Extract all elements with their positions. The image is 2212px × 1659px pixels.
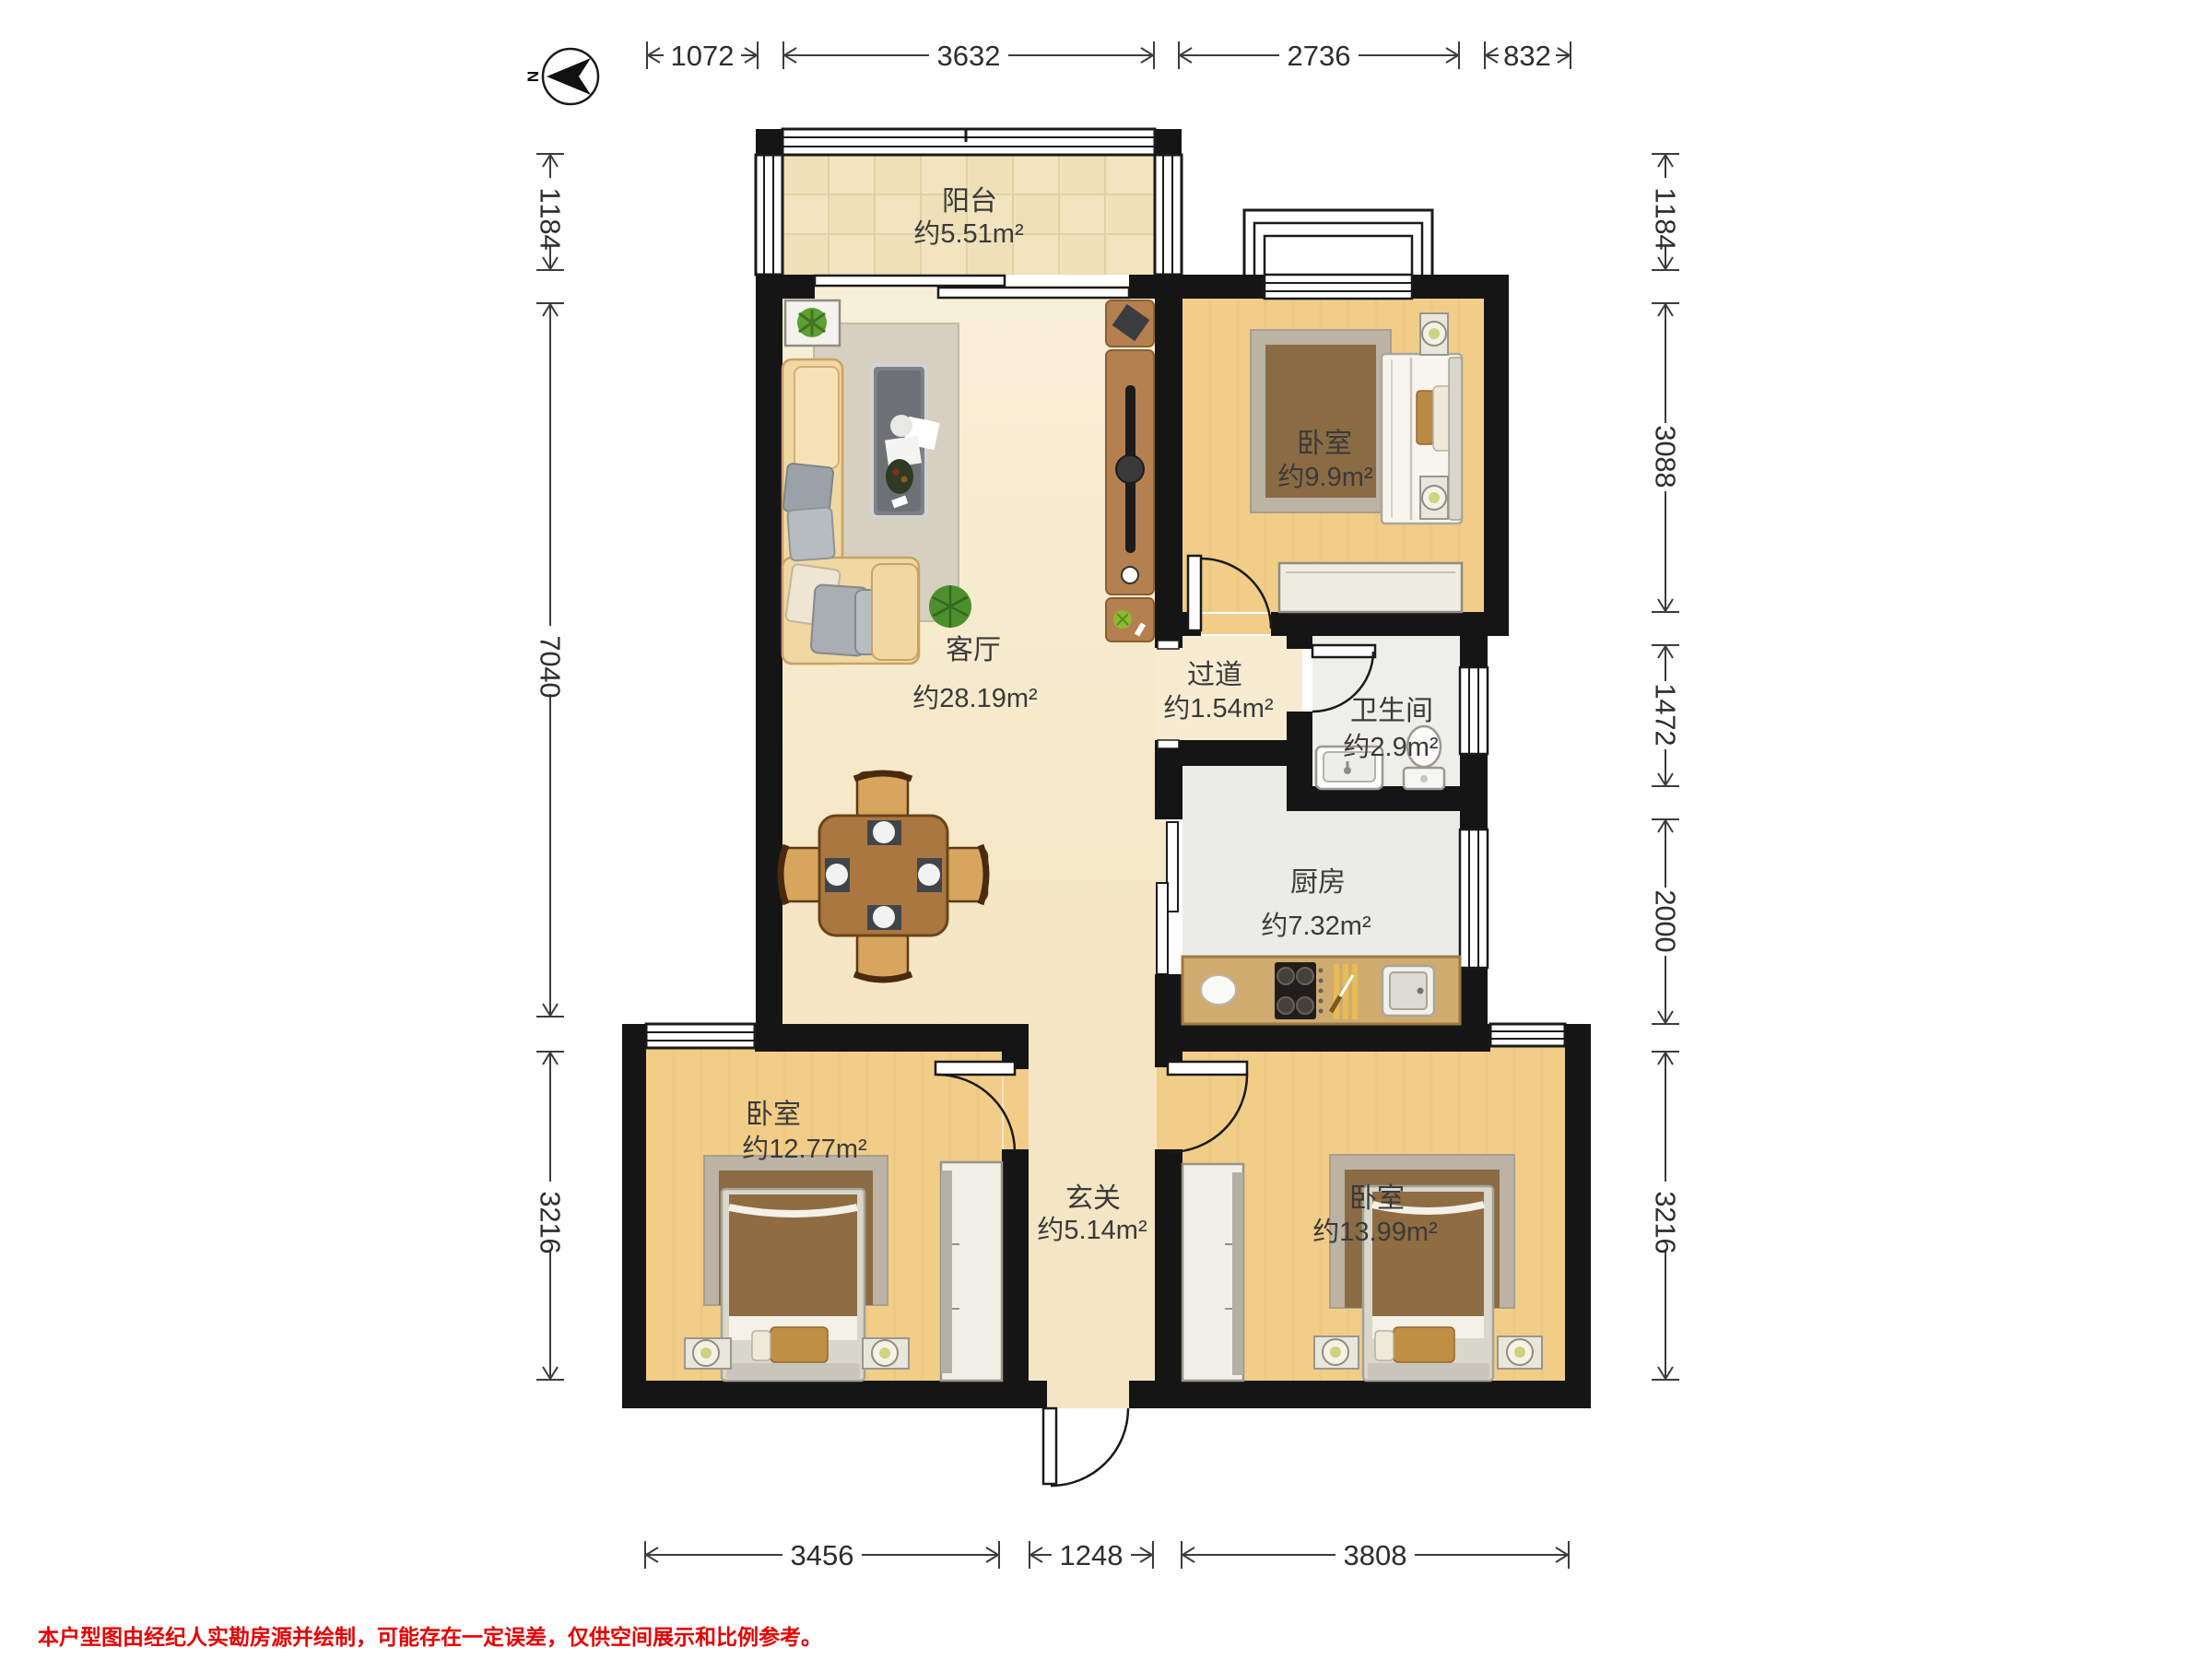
svg-text:本户型图由经纪人实勘房源并绘制，可能存在一定误差，仅供空间展: 本户型图由经纪人实勘房源并绘制，可能存在一定误差，仅供空间展示和比例参考。 — [38, 1625, 822, 1649]
svg-text:832: 832 — [1503, 40, 1551, 72]
svg-text:卧室: 卧室 — [1297, 429, 1352, 459]
svg-text:约7.32m²: 约7.32m² — [1261, 911, 1371, 941]
svg-text:阳台: 阳台 — [942, 186, 997, 217]
svg-text:卧室: 卧室 — [1349, 1183, 1405, 1214]
svg-text:4: 4 — [535, 234, 567, 250]
svg-text:卧室: 卧室 — [746, 1100, 801, 1130]
svg-text:4: 4 — [1650, 234, 1682, 250]
svg-text:约13.99m²: 约13.99m² — [1312, 1217, 1438, 1247]
svg-text:2: 2 — [535, 1206, 567, 1222]
svg-text:玄关: 玄关 — [1065, 1183, 1121, 1214]
svg-text:约1.54m²: 约1.54m² — [1163, 693, 1274, 724]
svg-text:2: 2 — [1650, 1206, 1682, 1222]
svg-text:0: 0 — [1650, 441, 1682, 456]
svg-text:客厅: 客厅 — [946, 635, 1001, 665]
svg-text:2: 2 — [1650, 730, 1682, 746]
svg-text:1: 1 — [1650, 187, 1682, 203]
svg-text:3456: 3456 — [791, 1539, 854, 1571]
svg-text:1: 1 — [1650, 1222, 1682, 1238]
svg-text:6: 6 — [1650, 1238, 1682, 1253]
svg-text:1: 1 — [1650, 203, 1682, 218]
svg-text:8: 8 — [1650, 472, 1682, 488]
svg-text:0: 0 — [1650, 936, 1682, 952]
svg-text:0: 0 — [1650, 905, 1682, 921]
svg-text:1: 1 — [1650, 683, 1682, 699]
svg-text:约12.77m²: 约12.77m² — [742, 1134, 867, 1164]
svg-text:约28.19m²: 约28.19m² — [912, 683, 1038, 713]
svg-text:约2.9m²: 约2.9m² — [1343, 732, 1438, 762]
svg-text:3808: 3808 — [1344, 1539, 1407, 1571]
svg-text:3632: 3632 — [937, 40, 1001, 72]
svg-text:4: 4 — [535, 666, 567, 682]
svg-text:3: 3 — [1650, 425, 1682, 441]
svg-text:3: 3 — [1650, 1191, 1682, 1206]
svg-text:约5.14m²: 约5.14m² — [1037, 1215, 1147, 1245]
svg-text:过道: 过道 — [1187, 660, 1242, 690]
svg-text:1: 1 — [535, 1222, 567, 1238]
svg-text:2: 2 — [1650, 889, 1682, 905]
svg-text:2736: 2736 — [1288, 40, 1351, 72]
svg-text:厨房: 厨房 — [1290, 867, 1346, 898]
svg-text:8: 8 — [1650, 218, 1682, 234]
svg-text:8: 8 — [1650, 456, 1682, 472]
svg-text:0: 0 — [535, 682, 567, 698]
svg-text:6: 6 — [535, 1238, 567, 1253]
svg-text:3: 3 — [535, 1191, 567, 1206]
svg-text:1248: 1248 — [1060, 1539, 1124, 1571]
svg-text:卫生间: 卫生间 — [1350, 696, 1433, 726]
svg-text:1: 1 — [535, 187, 567, 203]
svg-text:7: 7 — [1650, 714, 1682, 730]
svg-text:7: 7 — [535, 635, 567, 651]
svg-text:0: 0 — [1650, 921, 1682, 936]
svg-text:1: 1 — [535, 203, 567, 218]
svg-text:4: 4 — [1650, 699, 1682, 714]
svg-text:8: 8 — [535, 218, 567, 234]
svg-text:约9.9m²: 约9.9m² — [1277, 462, 1372, 492]
svg-text:0: 0 — [535, 651, 567, 666]
svg-text:N: N — [524, 71, 542, 82]
svg-text:1072: 1072 — [671, 40, 735, 72]
svg-text:约5.51m²: 约5.51m² — [913, 218, 1024, 249]
